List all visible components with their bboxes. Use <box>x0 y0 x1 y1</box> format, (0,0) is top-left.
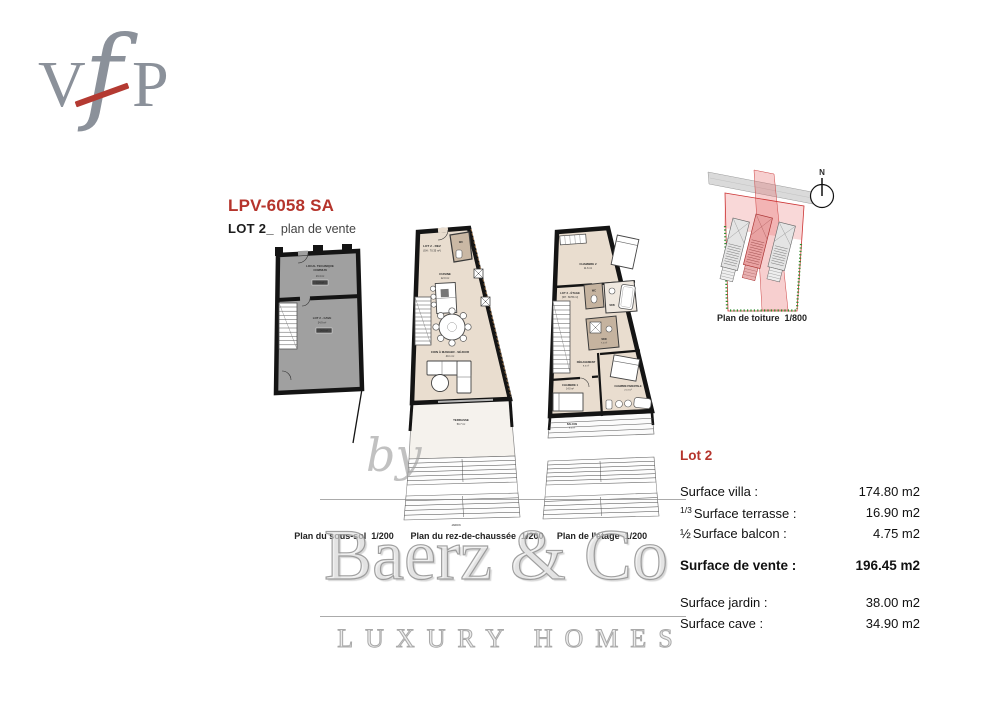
level-badge-text: 13.4 m² <box>316 282 324 285</box>
room-label: CHAMBRE 1 <box>562 383 578 387</box>
basement-stairs <box>279 303 297 349</box>
room-label: COMMUN <box>313 268 326 272</box>
toilet <box>456 250 462 258</box>
terrace-wall <box>410 403 412 431</box>
plan-de-vente-page: V f P LPV-6058 SA LOT 2_plan de vente LO… <box>0 0 1000 708</box>
caption-toiture: Plan de toiture 1/800 <box>706 313 818 323</box>
lot-area: (SH : 70.35 m²) <box>423 249 441 253</box>
north-arrow-icon: N <box>811 168 834 208</box>
staircase <box>415 297 431 345</box>
room-label: CHAMBRE PARENTALE <box>614 385 642 388</box>
shower <box>590 322 601 333</box>
watermark-tagline: LUXURY HOMES <box>322 624 688 654</box>
table-row-cave: Surface cave : 34.90 m2 <box>678 616 920 632</box>
room-label: BALCON <box>567 423 577 426</box>
room-label: CUISINE <box>439 272 451 276</box>
caption-sous-sol: Plan du sous-sol 1/200 <box>288 531 400 541</box>
lot-label: LOT 2 - REZ <box>423 244 441 248</box>
staircase <box>553 301 570 373</box>
toilet <box>591 295 597 303</box>
north-label: N <box>819 168 825 177</box>
vfp-logo: V f P <box>38 34 188 134</box>
bathtub <box>618 284 635 310</box>
room-label: WC <box>459 241 463 244</box>
garden-steps <box>404 456 520 520</box>
table-row-terrasse: 1/3Surface terrasse : 16.90 m2 <box>678 505 920 521</box>
lot-area: (SH : 69.55 m²) <box>562 296 579 299</box>
logo-letter-f: f <box>84 22 123 126</box>
watermark-rule-bottom <box>320 616 686 617</box>
coffee-table <box>432 375 449 392</box>
roof-plan: N <box>700 156 850 326</box>
room-area: 50.7 m² <box>457 423 466 426</box>
terrace <box>409 399 515 459</box>
room-area: 40.1 m² <box>446 355 455 358</box>
logo-letter-p: P <box>132 52 169 118</box>
wardrobe <box>560 234 587 245</box>
bed <box>611 235 639 269</box>
garden-steps <box>543 457 659 519</box>
level-badge-text: 34.9 m² <box>320 330 328 333</box>
logo-letter-v: V <box>38 52 86 118</box>
upper-floor-plan: CHAMBRE 2 11.6 m² LOT 2 - ÉTAGE (SH : 69… <box>540 223 672 535</box>
basement-plan: LOCAL TECHNIQUE COMMUN 13.4 m² 13.4 m² L… <box>270 243 370 448</box>
caption-etage: Plan de l'étage 1/200 <box>541 531 663 541</box>
room-area: 21.3 m² <box>624 389 632 392</box>
lot-title: LOT 2_plan de vente <box>228 221 356 236</box>
door-gap <box>438 230 448 231</box>
room-area: 7.2 m² <box>601 342 607 345</box>
room-label: CHAMBRE 2 <box>579 262 597 266</box>
room-label: SDB <box>609 304 614 307</box>
lot-number: LOT 2_ <box>228 221 274 236</box>
table-row-vente: Surface de vente : 196.45 m2 <box>678 558 920 574</box>
lot-subtitle: plan de vente <box>281 222 356 236</box>
bed <box>553 393 583 411</box>
ground-floor-plan: WC LOT 2 - REZ (SH : 70.35 m²) CUISINE 1… <box>398 223 533 535</box>
room-area: 11.6 m² <box>584 267 592 270</box>
dining-table <box>433 308 471 346</box>
table-row-balcon: ½Surface balcon : 4.75 m2 <box>678 526 920 542</box>
room-label: LOT 2 - CAVE <box>313 316 332 320</box>
table-row-villa: Surface villa : 174.80 m2 <box>678 484 920 500</box>
room-label: WC <box>592 290 596 293</box>
garden-label: JARDIN <box>451 523 460 527</box>
room-area: 9.5 m² <box>569 426 575 429</box>
sink <box>609 288 615 294</box>
lot-label: LOT 2 - ÉTAGE <box>560 290 580 295</box>
caption-rez-de-chaussee: Plan du rez-de-chaussée 1/200 <box>406 531 548 541</box>
room-area: 34.9 m² <box>318 322 327 325</box>
surface-table-title: Lot 2 <box>680 448 712 463</box>
room-label: COIN À MANGER - SÉJOUR <box>431 349 470 354</box>
bed <box>610 355 639 381</box>
room-area: 13.4 m² <box>316 275 325 278</box>
room-area: 9.3 m² <box>583 365 589 368</box>
terrace-wall <box>510 399 512 427</box>
room-label: TERRASSE <box>453 418 469 422</box>
room-label: SDD <box>601 338 606 341</box>
plan-reference: LPV-6058 SA <box>228 196 334 216</box>
table-row-jardin: Surface jardin : 38.00 m2 <box>678 595 920 611</box>
sink <box>606 326 612 332</box>
room-area: 14.0 m² <box>566 388 574 391</box>
door-gap <box>298 253 308 254</box>
boundary-line <box>353 389 362 443</box>
room-area: 12.0 m² <box>441 277 450 280</box>
